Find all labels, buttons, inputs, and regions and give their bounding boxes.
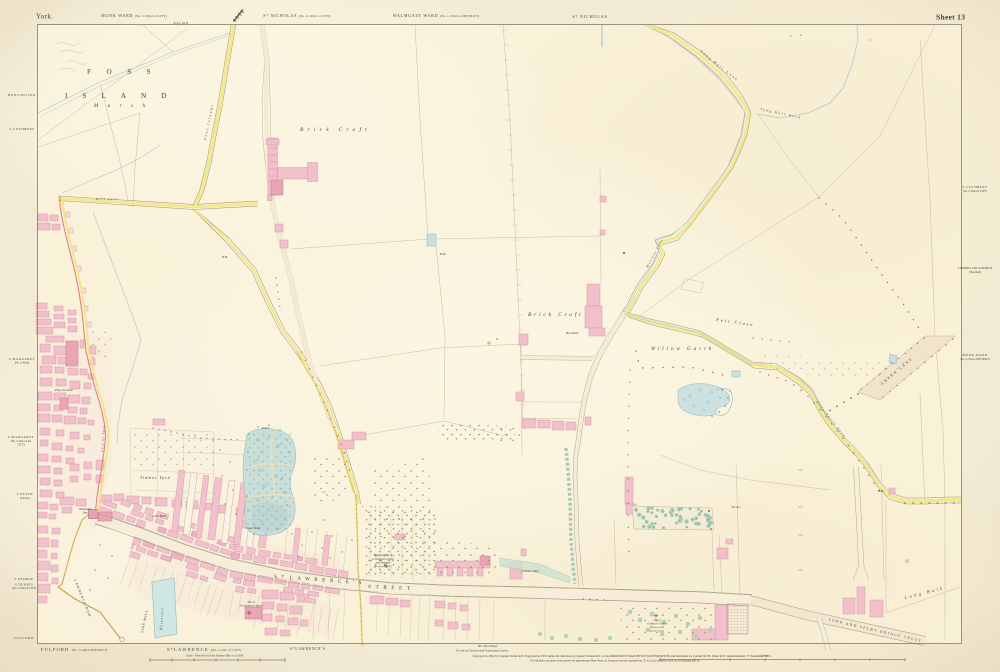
svg-text:B.M.: B.M.: [878, 489, 884, 493]
svg-text:STLAWRENCE'S: STLAWRENCE'S: [290, 647, 326, 651]
svg-text:Nursery: Nursery: [730, 506, 741, 509]
svg-text:Coal Yard: Coal Yard: [246, 526, 260, 530]
svg-text:(Liberty): (Liberty): [20, 497, 29, 500]
svg-text:St Lawrence Church: St Lawrence Church: [240, 605, 263, 608]
svg-text:S.GEORGE: S.GEORGE: [14, 577, 34, 581]
svg-text:Pond: Pond: [261, 426, 269, 430]
svg-text:S.MARGARET: S.MARGARET: [8, 435, 34, 439]
svg-text:ISLAND: ISLAND: [65, 92, 181, 100]
svg-text:Timber Yard: Timber Yard: [140, 475, 171, 480]
svg-text:Marsh: Marsh: [93, 104, 155, 109]
svg-text:Brickkiln: Brickkiln: [566, 331, 579, 335]
svg-text:(No. to Ward of CITY): (No. to Ward of CITY): [12, 587, 36, 590]
svg-text:Rev. The Villages: Rev. The Villages: [477, 645, 498, 648]
svg-text:MONK WARD (No. to Ward of CITY: MONK WARD (No. to Ward of CITY): [101, 13, 167, 18]
svg-text:CITY): CITY): [18, 444, 25, 447]
svg-text:STLAWRENCE (No. to Part of CIT: STLAWRENCE (No. to Part of CITY): [167, 647, 241, 652]
svg-text:ST NICHOLAS: ST NICHOLAS: [572, 14, 607, 19]
svg-text:The site of Churches and Churc: The site of Churches and Churchyards is …: [456, 650, 509, 653]
svg-text:S.CUTHBERT: S.CUTHBERT: [9, 127, 34, 131]
svg-text:Coal Yard: Coal Yard: [152, 514, 166, 518]
svg-text:HUNTINGTON: HUNTINGTON: [8, 93, 36, 97]
svg-text:St Helen's Well: St Helen's Well: [522, 570, 539, 573]
svg-text:MONK WARD: MONK WARD: [962, 353, 987, 357]
svg-text:S.DENNIS with S.GEORGE: S.DENNIS with S.GEORGE: [958, 266, 993, 270]
svg-text:(No. to Ward): (No. to Ward): [15, 362, 30, 365]
svg-text:Scale - Five Feet to One Statu: Scale - Five Feet to One Statute Mile or…: [186, 654, 244, 658]
svg-text:The Altitudes are given in fee: The Altitudes are given in feet above th…: [530, 660, 700, 663]
svg-text:Brick Croft: Brick Croft: [528, 311, 584, 318]
svg-text:York.: York.: [36, 13, 53, 21]
svg-text:B.M.: B.M.: [222, 255, 228, 259]
svg-text:Plan XIII: Plan XIII: [174, 21, 189, 25]
svg-text:B.M.: B.M.: [440, 252, 446, 256]
svg-text:S.MARGARET: S.MARGARET: [9, 357, 35, 361]
svg-text:S.CUTHBERT: S.CUTHBERT: [962, 185, 987, 189]
svg-text:FOSS: FOSS: [87, 68, 166, 76]
svg-text:(No. to Ward of CITY): (No. to Ward of CITY): [963, 190, 987, 193]
svg-text:ST NICHOLAS (No. to Ward of CI: ST NICHOLAS (No. to Ward of CITY): [263, 13, 331, 18]
svg-text:(Detached): (Detached): [969, 271, 981, 274]
svg-text:Burial Ground: Burial Ground: [650, 630, 665, 633]
svg-text:Mill Lane: Mill Lane: [95, 197, 119, 201]
svg-text:Brick Croft: Brick Croft: [300, 126, 371, 133]
svg-text:(Destroyed 1745): (Destroyed 1745): [375, 565, 392, 568]
svg-text:Sheet 13: Sheet 13: [936, 13, 965, 22]
svg-text:Play Ground: Play Ground: [54, 388, 73, 392]
svg-text:Willow Garth: Willow Garth: [651, 347, 714, 352]
svg-text:FULFORD (No. to Rural DISTRICT: FULFORD (No. to Rural DISTRICT): [41, 647, 107, 652]
svg-text:Bar: Bar: [83, 511, 89, 515]
svg-text:FULFORD: FULFORD: [14, 636, 34, 640]
svg-text:(No. to Ward of DISTRICT): (No. to Ward of DISTRICT): [960, 358, 990, 361]
svg-text:S.DENNIS: S.DENNIS: [15, 583, 33, 587]
svg-text:S.PETER: S.PETER: [17, 492, 34, 496]
svg-text:WALMGATE WARD (No. to Ward of: WALMGATE WARD (No. to Ward of DISTRICT): [393, 13, 479, 18]
svg-text:Supposed Site of: Supposed Site of: [374, 554, 394, 557]
